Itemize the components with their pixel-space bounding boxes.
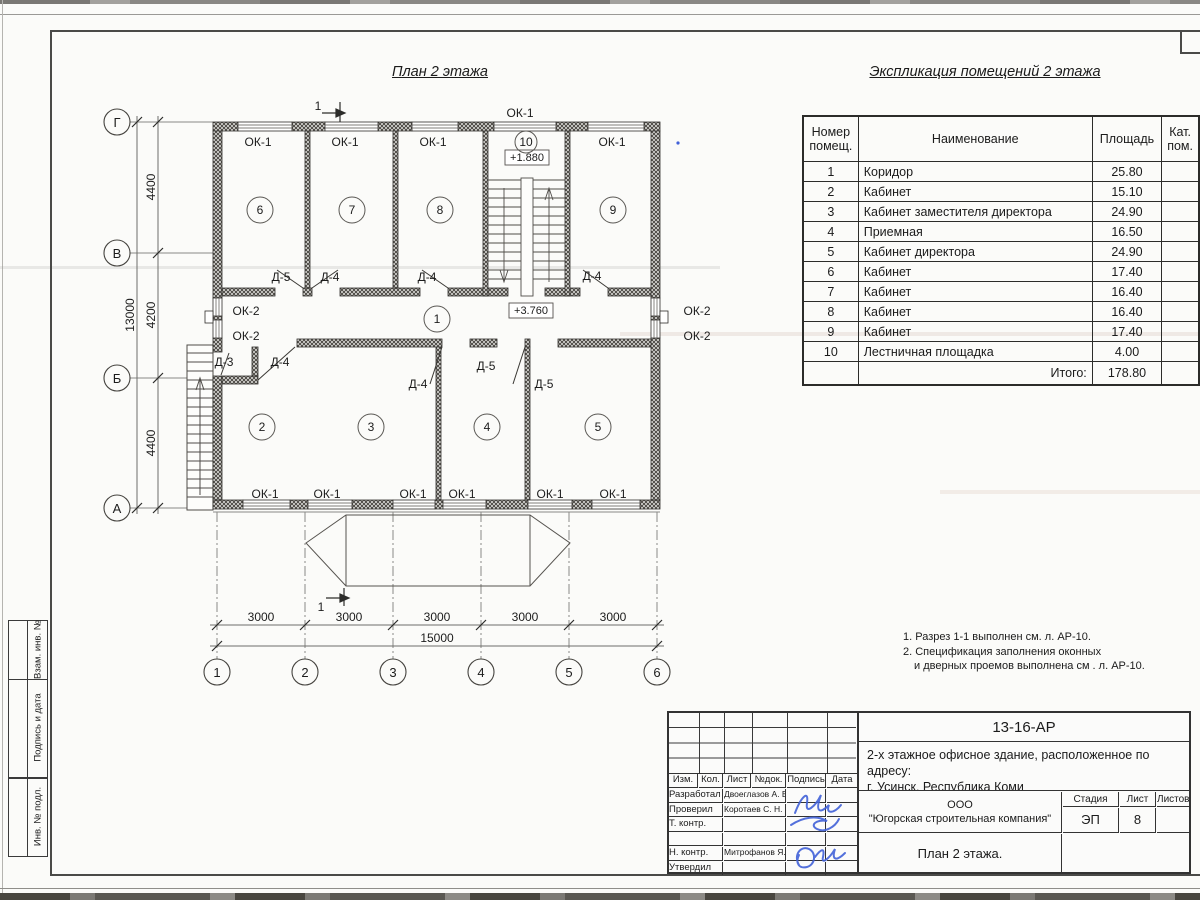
cell-cat: [1162, 322, 1199, 342]
doc-number: 13-16-АР: [859, 713, 1189, 742]
table-row: 7Кабинет16.40: [803, 282, 1199, 302]
porch-canopy: [306, 515, 570, 586]
dim-label: 4400: [144, 429, 158, 456]
sheets-label: Листов: [1157, 792, 1189, 807]
window-label-ok1: ОК-1: [600, 487, 627, 501]
table-row: 4Приемная16.50: [803, 222, 1199, 242]
role-name: [724, 833, 786, 847]
table-row: 1Коридор25.80: [803, 162, 1199, 182]
role-label: Утвердил: [669, 862, 723, 875]
axis-col-label: 6: [653, 665, 660, 680]
revision-grid: [669, 713, 856, 774]
axis-col-label: 2: [301, 665, 308, 680]
cell-area: 4.00: [1092, 342, 1161, 362]
axis-col-label: 4: [477, 665, 484, 680]
room-number: 5: [595, 420, 602, 434]
door-label-d4: Д-4: [418, 270, 437, 284]
col-kol: Кол.: [699, 774, 723, 788]
room-number: 4: [484, 420, 491, 434]
header-number: Номер помещ.: [803, 116, 858, 162]
section-number: 1: [318, 600, 325, 614]
window-label-ok1: ОК-1: [245, 135, 272, 149]
role-label: [669, 833, 723, 847]
table-row: 2Кабинет15.10: [803, 182, 1199, 202]
level-mark: +3.760: [514, 305, 548, 317]
role-label: Проверил: [669, 804, 723, 818]
side-stamp: Взам. инв. № Подпись и дата Инв. № подл.: [8, 620, 48, 857]
total-label: Итого:: [858, 362, 1092, 386]
table-total-row: Итого: 178.80: [803, 362, 1199, 386]
room-number: 8: [437, 203, 444, 217]
table-header-row: Номер помещ. Наименование Площадь Кат. п…: [803, 116, 1199, 162]
cell-num: 3: [803, 202, 858, 222]
cell-name: Кабинет заместителя директора: [858, 202, 1092, 222]
door-label-d5: Д-5: [535, 377, 554, 391]
cell-cat: [1162, 242, 1199, 262]
cell-num: 9: [803, 322, 858, 342]
room-number: 3: [368, 420, 375, 434]
header-category: Кат. пом.: [1162, 116, 1199, 162]
cell-area: 24.90: [1092, 202, 1161, 222]
room-number: 10: [519, 135, 533, 149]
axis-col-label: 3: [389, 665, 396, 680]
dim-label: 3000: [424, 610, 451, 624]
cell-name: Коридор: [858, 162, 1092, 182]
cell-num: 2: [803, 182, 858, 202]
axis-row-label: Б: [113, 371, 122, 386]
cell-cat: [1162, 302, 1199, 322]
window-label-ok2: ОК-2: [233, 304, 260, 318]
cell-num: 5: [803, 242, 858, 262]
dim-label: 4200: [144, 301, 158, 328]
room-number: 2: [259, 420, 266, 434]
table-row: 5Кабинет директора24.90: [803, 242, 1199, 262]
table-row: 3Кабинет заместителя директора24.90: [803, 202, 1199, 222]
window-label-ok2: ОК-2: [684, 304, 711, 318]
cell-area: 16.50: [1092, 222, 1161, 242]
ink-speck: [676, 141, 679, 144]
dim-label: 3000: [600, 610, 627, 624]
cell-num: 1: [803, 162, 858, 182]
section-number: 1: [315, 99, 322, 113]
window-label-ok2: ОК-2: [684, 329, 711, 343]
window-label-ok1: ОК-1: [314, 487, 341, 501]
stamp-label: Взам. инв. №: [33, 620, 44, 680]
stamp-label: Подпись и дата: [33, 678, 44, 778]
dim-label: 3000: [336, 610, 363, 624]
col-list: Лист: [724, 774, 751, 788]
exterior-stair: [187, 345, 213, 510]
cell-cat: [1162, 282, 1199, 302]
cell-num: 10: [803, 342, 858, 362]
room-number: 6: [257, 203, 264, 217]
note-line: 2. Спецификация заполнения оконных: [903, 645, 1193, 660]
axis-col-label: 1: [213, 665, 220, 680]
cell-num: 4: [803, 222, 858, 242]
door-label-d3: Д-3: [215, 355, 234, 369]
note-line: и дверных проемов выполнена см . л. АР-1…: [903, 659, 1193, 674]
window-label-ok1: ОК-1: [599, 135, 626, 149]
sheets-value: [1157, 808, 1189, 833]
stamp-divider: [27, 620, 28, 857]
cell-name: Кабинет: [858, 262, 1092, 282]
cell-area: 17.40: [1092, 262, 1161, 282]
dim-label: 3000: [512, 610, 539, 624]
axis-col-label: 5: [565, 665, 572, 680]
door-label-d4: Д-4: [409, 377, 428, 391]
cell-area: 16.40: [1092, 282, 1161, 302]
section-marks: [322, 102, 349, 606]
window-label-ok1: ОК-1: [537, 487, 564, 501]
cell-num: 6: [803, 262, 858, 282]
stage-value: ЭП: [1063, 808, 1119, 833]
total-value: 178.80: [1092, 362, 1161, 386]
door-label-d4: Д-4: [271, 355, 290, 369]
window-label-ok1: ОК-1: [252, 487, 279, 501]
project-description: 2-х этажное офисное здание, расположенно…: [859, 743, 1189, 791]
window-label-ok1: ОК-1: [420, 135, 447, 149]
axis-row-label: А: [113, 501, 122, 516]
dim-label: 4400: [144, 173, 158, 200]
header-area: Площадь: [1092, 116, 1161, 162]
interior-stair: [488, 178, 565, 296]
window-label-ok1: ОК-1: [400, 487, 427, 501]
door-label-d5: Д-5: [272, 270, 291, 284]
window-label-ok2: ОК-2: [233, 329, 260, 343]
cell-name: Приемная: [858, 222, 1092, 242]
role-label: Разработал: [669, 789, 723, 803]
cell-area: 17.40: [1092, 322, 1161, 342]
header-name: Наименование: [858, 116, 1092, 162]
cell-num: [803, 362, 858, 386]
stage-label: Стадия: [1063, 792, 1119, 807]
cell-name: Кабинет директора: [858, 242, 1092, 262]
role-label: Н. контр.: [669, 847, 723, 861]
cell-name: Кабинет: [858, 322, 1092, 342]
role-name: [724, 818, 786, 832]
door-label-d4: Д-4: [583, 269, 602, 283]
sheet-label: Лист: [1120, 792, 1156, 807]
window-label-ok1: ОК-1: [332, 135, 359, 149]
room-number: 9: [610, 203, 617, 217]
cell-cat: [1162, 182, 1199, 202]
dim-total-label: 15000: [420, 631, 454, 645]
col-izm: Изм.: [669, 774, 698, 788]
cell-area: 16.40: [1092, 302, 1161, 322]
drawing-notes: 1. Разрез 1-1 выполнен см. л. АР-10. 2. …: [903, 630, 1193, 674]
room-number: 7: [349, 203, 356, 217]
handwritten-signatures: [781, 773, 861, 876]
cell-area: 24.90: [1092, 242, 1161, 262]
cell-cat: [1162, 162, 1199, 182]
sheet: План 2 этажа Экспликация помещений 2 эта…: [0, 0, 1200, 900]
door-label-d4: Д-4: [321, 270, 340, 284]
cell-cat: [1162, 342, 1199, 362]
role-name: Двоеглазов А. В.: [724, 789, 786, 803]
cell-cat: [1162, 362, 1199, 386]
table-row: 6Кабинет17.40: [803, 262, 1199, 282]
room-number: 1: [434, 312, 441, 326]
door-label-d5: Д-5: [477, 359, 496, 373]
role-label: Т. контр.: [669, 818, 723, 832]
sheet-name: План 2 этажа.: [859, 834, 1062, 872]
dim-total-label: 13000: [123, 298, 137, 332]
organization: ООО "Югорская строительная компания": [859, 792, 1062, 833]
cell-cat: [1162, 262, 1199, 282]
dim-label: 3000: [248, 610, 275, 624]
role-name: [724, 862, 786, 875]
room-schedule-table: Номер помещ. Наименование Площадь Кат. п…: [802, 115, 1200, 386]
role-name: Коротаев С. Н.: [724, 804, 786, 818]
cell-area: 15.10: [1092, 182, 1161, 202]
window-label-ok1: ОК-1: [449, 487, 476, 501]
title-block: Изм. Кол. Лист №док. Подпись Дата Разраб…: [667, 711, 1191, 874]
cell-name: Кабинет: [858, 302, 1092, 322]
window-label-ok1: ОК-1: [507, 106, 534, 120]
axis-row-label: Г: [113, 115, 120, 130]
table-row: 9Кабинет17.40: [803, 322, 1199, 342]
cell-name: Кабинет: [858, 282, 1092, 302]
cell-cat: [1162, 222, 1199, 242]
stamp-label: Инв. № подл.: [33, 777, 44, 857]
cell-name: Лестничная площадка: [858, 342, 1092, 362]
axis-row-label: В: [113, 246, 122, 261]
cell-num: 7: [803, 282, 858, 302]
cell-name: Кабинет: [858, 182, 1092, 202]
level-mark: +1.880: [510, 152, 544, 164]
role-name: Митрофанов Я. А.: [724, 847, 786, 861]
note-line: 1. Разрез 1-1 выполнен см. л. АР-10.: [903, 630, 1193, 645]
cell-num: 8: [803, 302, 858, 322]
table-row: 10Лестничная площадка4.00: [803, 342, 1199, 362]
cell-cat: [1162, 202, 1199, 222]
table-row: 8Кабинет16.40: [803, 302, 1199, 322]
cell-area: 25.80: [1092, 162, 1161, 182]
sheet-value: 8: [1120, 808, 1156, 833]
